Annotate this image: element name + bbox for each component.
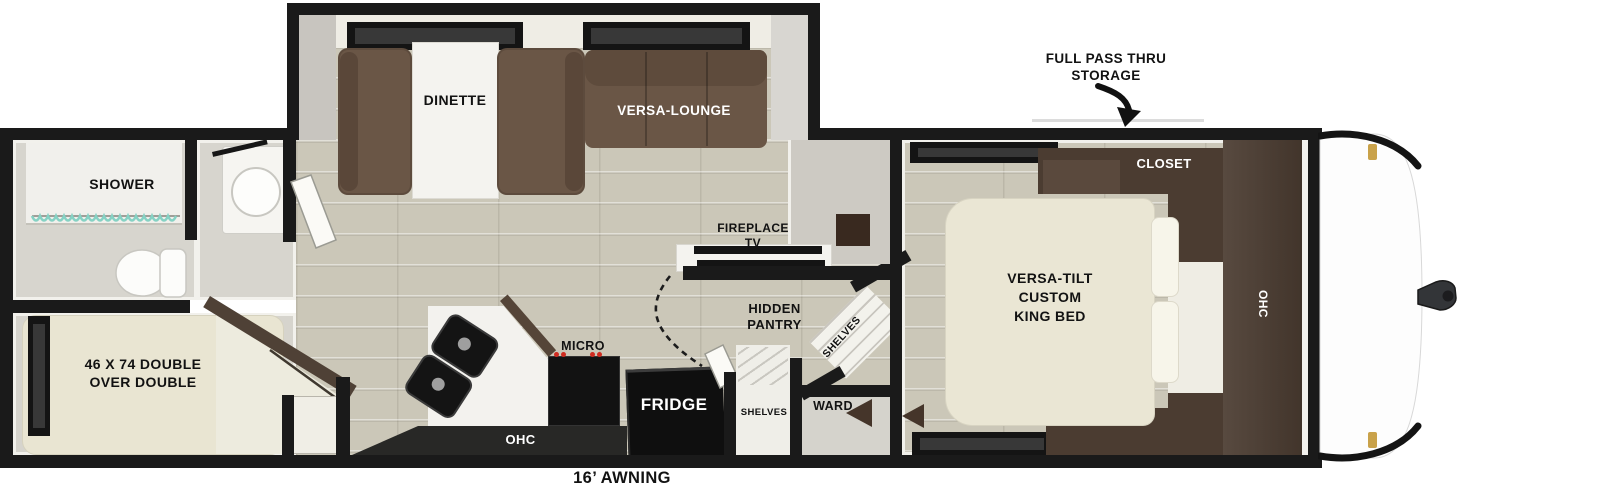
- range-knob-1: [554, 352, 559, 357]
- bed-pillow-top: [1151, 217, 1179, 297]
- label-hidden-pantry-line2: PANTRY: [727, 318, 822, 331]
- wall-ward-top: [802, 385, 890, 397]
- label-micro: MICRO: [551, 340, 615, 353]
- label-fireplace-line1: FIREPLACE: [706, 222, 800, 234]
- label-dinette: DINETTE: [408, 93, 502, 107]
- wall-bunk-right: [282, 395, 294, 468]
- label-shelves-closet: SHELVES: [736, 408, 792, 418]
- wall-shower-vanity: [185, 140, 197, 240]
- label-closet: CLOSET: [1118, 157, 1210, 170]
- wall-top-left: [0, 128, 299, 140]
- versa-lounge-backrest: [585, 50, 767, 86]
- label-bed-line3: KING BED: [960, 309, 1140, 323]
- tv-screen: [836, 214, 870, 246]
- label-fireplace-line2: TV: [706, 237, 800, 249]
- label-storage-line1: FULL PASS THRU: [1028, 52, 1184, 66]
- bedroom-corner-triangle: [902, 404, 924, 428]
- rv-floorplan: SHOWER DINETTE VERSA-LOUNGE 46 X 74 DOUB…: [0, 0, 1600, 488]
- wall-slideout-top: [287, 3, 820, 15]
- range-micro: [548, 356, 620, 426]
- headboard-cabinet-bottom: [1168, 393, 1223, 458]
- wall-bottom: [0, 455, 1322, 468]
- wall-fireplace-bottom: [683, 266, 890, 280]
- shower-curtain: [28, 206, 184, 230]
- versa-lounge-seam-2: [706, 52, 708, 146]
- label-shower: SHOWER: [60, 177, 184, 191]
- label-bunk-line1: 46 X 74 DOUBLE: [58, 357, 228, 371]
- steps-landing: [288, 396, 338, 454]
- wall-slideout-right: [808, 3, 820, 140]
- label-bedroom-ohc: OHC: [1249, 282, 1269, 326]
- toilet: [108, 242, 188, 302]
- bedroom-window-top: [910, 142, 1058, 163]
- dinette-bench-right-backrest: [565, 52, 583, 191]
- hitch-icon: [1418, 281, 1456, 310]
- label-kitchen-ohc: OHC: [478, 433, 563, 446]
- bedroom-window-bottom: [912, 432, 1052, 456]
- wall-steps-right: [336, 377, 350, 455]
- wall-top-right: [808, 128, 1322, 140]
- label-versa-lounge: VERSA-LOUNGE: [594, 104, 754, 118]
- storage-arrow-icon: [1090, 82, 1150, 128]
- wall-shelves-left: [724, 372, 736, 468]
- dinette-bench-left-backrest: [340, 52, 358, 191]
- front-cap: [1318, 122, 1468, 470]
- shelves-closet-shelf-lines: [738, 347, 788, 385]
- label-ward: WARD: [804, 400, 862, 413]
- label-fridge: FRIDGE: [629, 396, 719, 413]
- dinette-table: [412, 42, 499, 199]
- bed-pillow-bottom: [1151, 301, 1179, 383]
- closet-cabinet-front: [1043, 160, 1120, 194]
- wall-slideout-left: [287, 3, 299, 140]
- slideout-window-right: [583, 22, 750, 50]
- wall-bath-bottom: [0, 300, 190, 313]
- wall-bedroom-left: [890, 128, 902, 468]
- bath-door: [284, 172, 342, 254]
- label-storage-line2: STORAGE: [1028, 69, 1184, 83]
- vanity-sink-bowl: [231, 167, 281, 217]
- label-hidden-pantry-line1: HIDDEN: [727, 302, 822, 315]
- label-bed-line2: CUSTOM: [960, 290, 1140, 304]
- wall-left: [0, 128, 13, 468]
- bunk-window: [28, 316, 50, 436]
- label-bed-line1: VERSA-TILT: [960, 271, 1140, 285]
- versa-lounge-seam-1: [645, 52, 647, 146]
- label-bunk-line2: OVER DOUBLE: [58, 375, 228, 389]
- label-awning: 16’ AWNING: [548, 470, 696, 487]
